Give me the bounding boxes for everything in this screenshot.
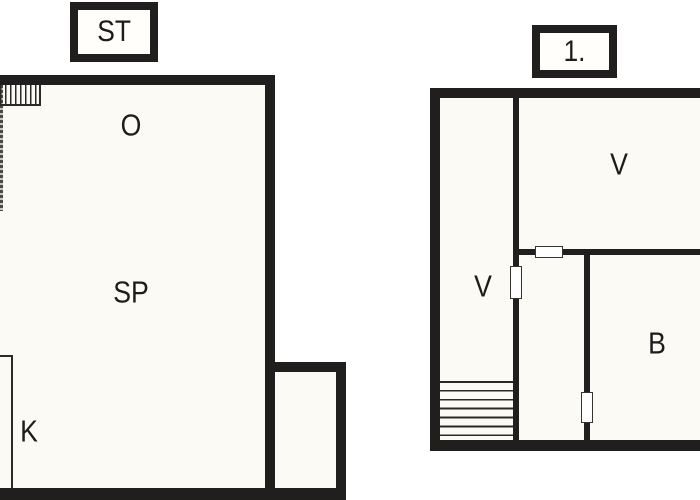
door-opening-b-room — [581, 392, 593, 423]
room-label-sp: SP — [113, 277, 149, 308]
door-opening-v-room — [535, 246, 563, 258]
stairs-icon — [0, 85, 41, 106]
ground-floor-annex-room-fill — [275, 372, 336, 488]
wall-bottom — [0, 488, 346, 500]
wall-left — [430, 88, 440, 450]
room-label-v-upper: V — [610, 149, 628, 180]
room-label-o: O — [121, 110, 142, 141]
room-label-v-corridor: V — [474, 271, 492, 302]
ground-floor-title-box: ST — [70, 2, 158, 62]
door-opening-corridor — [510, 266, 522, 299]
ground-floor-title: ST — [97, 15, 131, 49]
wall-bottom — [430, 440, 700, 451]
wall-top — [0, 75, 275, 85]
floor-plan-canvas: ST O SP K 1. V V B — [0, 0, 700, 500]
wall-annex-top — [265, 362, 346, 372]
wall-top — [430, 88, 700, 98]
room-label-k: K — [20, 416, 38, 447]
first-floor-title-box: 1. — [532, 25, 617, 78]
wall-annex-right — [336, 362, 346, 500]
kitchen-partition-line-v — [11, 355, 13, 488]
room-label-b: B — [648, 328, 666, 359]
first-floor-title: 1. — [563, 35, 585, 69]
stairs-icon — [440, 381, 513, 440]
wall-right — [265, 75, 275, 500]
